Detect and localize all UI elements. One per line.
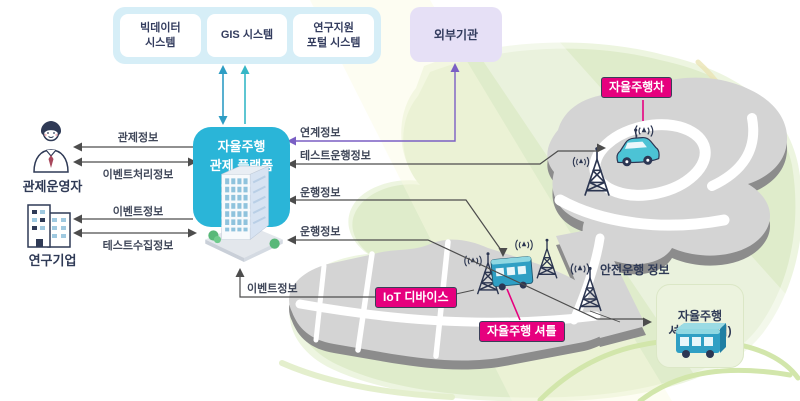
flow-label-control-info: 관제정보 bbox=[88, 129, 188, 145]
operator-label: 관제운영자 bbox=[5, 176, 100, 195]
flow-label-event-handling-info: 이벤트처리정보 bbox=[88, 166, 188, 182]
systems-panel: 빅데이터 시스템 GIS 시스템 연구지원 포털 시스템 bbox=[113, 7, 381, 64]
flow-label-operation-info-2: 운행정보 bbox=[300, 223, 340, 239]
systems-platform-arrows bbox=[219, 65, 250, 125]
operator-person-icon bbox=[27, 120, 75, 176]
research-company-label: 연구기업 bbox=[5, 250, 100, 269]
flow-label-event-info: 이벤트정보 bbox=[88, 203, 188, 219]
safe-operation-info-label: 안전운행 정보 bbox=[600, 261, 670, 278]
system-box-gis: GIS 시스템 bbox=[207, 14, 288, 57]
research-company-building-icon bbox=[24, 201, 76, 251]
badge-autonomous-shuttle: 자율주행 셔틀 bbox=[479, 321, 565, 342]
system-box-research-portal: 연구지원 포털 시스템 bbox=[293, 14, 374, 57]
station-box: 자율주행 셔틀(판교역) bbox=[656, 284, 744, 368]
system-box-bigdata: 빅데이터 시스템 bbox=[120, 14, 201, 57]
flow-label-linkage-info: 연계정보 bbox=[300, 124, 340, 140]
autonomous-driving-platform-diagram: 빅데이터 시스템 GIS 시스템 연구지원 포털 시스템 외부기관 자율주행 관… bbox=[0, 0, 800, 401]
flow-label-operation-info-1: 운행정보 bbox=[300, 184, 340, 200]
badge-iot-device: IoT 디바이스 bbox=[375, 287, 457, 308]
badge-autonomous-car: 자율주행차 bbox=[601, 77, 672, 98]
flow-label-test-collection-info: 테스트수집정보 bbox=[88, 237, 188, 253]
station-bus-icon bbox=[674, 321, 728, 361]
platform-building-icon bbox=[202, 160, 286, 262]
flow-label-event-info-bottom: 이벤트정보 bbox=[247, 280, 298, 296]
flow-label-test-operation-info: 테스트운행정보 bbox=[300, 147, 371, 163]
external-org-box: 외부기관 bbox=[410, 7, 502, 62]
